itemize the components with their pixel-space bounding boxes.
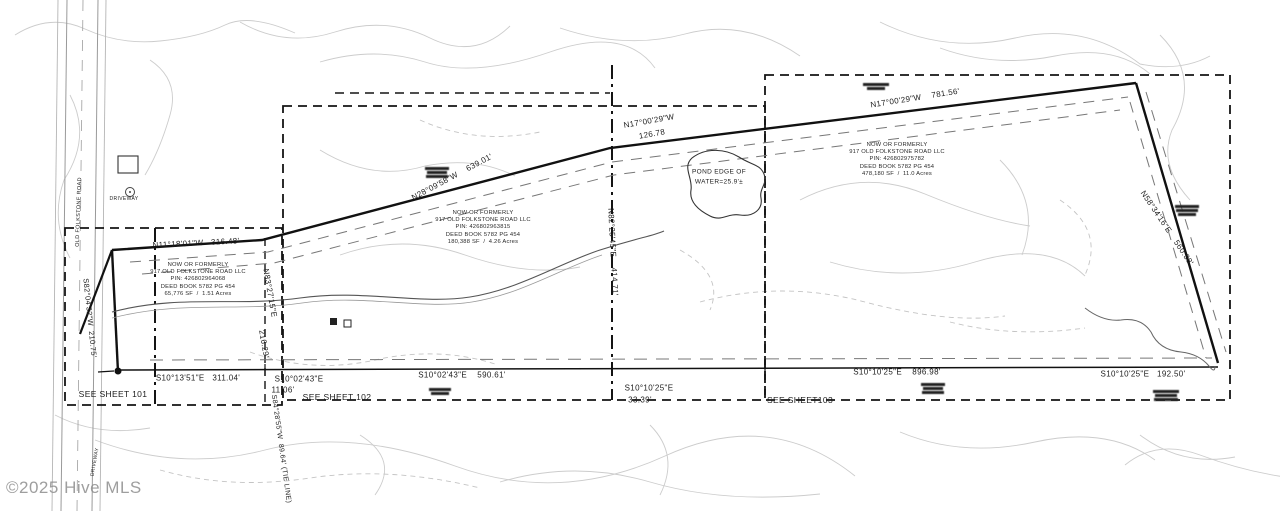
bearing-label: S10°10'25"E bbox=[625, 384, 674, 393]
tie-line-label: S84°28'55"W 89.64' (TIE LINE) bbox=[270, 394, 292, 503]
parcel-info-line: DEED BOOK 5782 PG 454 bbox=[435, 232, 531, 239]
parcel-info-line: PIN: 426802975782 bbox=[849, 156, 945, 163]
sheet-ref-label: SEE SHEET 101 bbox=[79, 389, 148, 399]
parcel-info-line: DEED BOOK 5782 PG 454 bbox=[849, 164, 945, 171]
sheet-ref-label: SEE SHEET 102 bbox=[303, 392, 372, 402]
parcel-info-line: PIN: 426802964068 bbox=[150, 276, 246, 283]
bearing-label: N17°00'29"W 781.56' bbox=[870, 87, 960, 110]
distance-label: 126.78 bbox=[638, 127, 666, 140]
parcel-info-line: 65,776 SF / 1.51 Acres bbox=[150, 291, 246, 298]
bearing-label: N83°27'15"E bbox=[261, 268, 278, 318]
distance-label: 11.06' bbox=[271, 386, 294, 395]
parcel-info-line: DEED BOOK 5782 PG 454 bbox=[150, 284, 246, 291]
bearing-label: N28°09'58"W 639.01' bbox=[410, 152, 494, 202]
parcel-info-line: NOW OR FORMERLY bbox=[150, 262, 246, 269]
distance-label: 216.29' bbox=[257, 329, 271, 359]
label-layer: N17°00'29"W126.78N17°00'29"W 781.56'N28°… bbox=[0, 0, 1280, 511]
road-label: OLD FOLKSTONE ROAD bbox=[75, 177, 83, 247]
pond-label: WATER=25.9'± bbox=[695, 179, 743, 186]
driveway-label: DRIVEWAY bbox=[110, 196, 139, 202]
pond-label: POND EDGE OF bbox=[692, 169, 746, 176]
parcel-info-line: 478,180 SF / 11.0 Acres bbox=[849, 171, 945, 178]
parcel-info-line: 917 OLD FOLKSTONE ROAD LLC bbox=[150, 269, 246, 276]
bearing-label: S10°02'43"E 590.61' bbox=[418, 371, 506, 380]
driveway-label: DRIVEWAY bbox=[90, 447, 101, 477]
sheet-ref-label: SEE SHEET103 bbox=[767, 395, 833, 405]
parcel-info-line: NOW OR FORMERLY bbox=[435, 210, 531, 217]
bearing-label: N11°18'01"W 316.48' bbox=[152, 236, 239, 250]
bearing-label: S10°10'25"E 192.50' bbox=[1101, 370, 1186, 379]
parcel-info-line: NOW OR FORMERLY bbox=[849, 142, 945, 149]
parcel-info-block: NOW OR FORMERLY917 OLD FOLKSTONE ROAD LL… bbox=[849, 142, 945, 178]
bearing-label: S10°02'43"E bbox=[275, 375, 324, 384]
bearing-label: S10°13'51"E 311.04' bbox=[156, 374, 240, 383]
parcel-info-block: NOW OR FORMERLY917 OLD FOLKSTONE ROAD LL… bbox=[150, 262, 246, 298]
survey-plat-map: N17°00'29"W126.78N17°00'29"W 781.56'N28°… bbox=[0, 0, 1280, 511]
bearing-label: S10°10'25"E 896.98' bbox=[853, 368, 941, 377]
parcel-info-line: 917 OLD FOLKSTONE ROAD LLC bbox=[435, 217, 531, 224]
parcel-info-line: 180,388 SF / 4.26 Acres bbox=[435, 239, 531, 246]
mls-watermark: ©2025 Hive MLS bbox=[6, 478, 142, 498]
parcel-info-block: NOW OR FORMERLY917 OLD FOLKSTONE ROAD LL… bbox=[435, 210, 531, 246]
parcel-info-line: 917 OLD FOLKSTONE ROAD LLC bbox=[849, 149, 945, 156]
bearing-label: N82°25'45"E 414.71' bbox=[606, 208, 620, 296]
bearing-label: N17°00'29"W bbox=[623, 112, 675, 130]
bearing-label: N58°34'16"E 560.38' bbox=[1139, 189, 1196, 267]
parcel-info-line: PIN: 426802963815 bbox=[435, 224, 531, 231]
distance-label: 33.39' bbox=[628, 396, 652, 405]
bearing-label: S82°04'32"W 210.75' bbox=[81, 278, 98, 358]
